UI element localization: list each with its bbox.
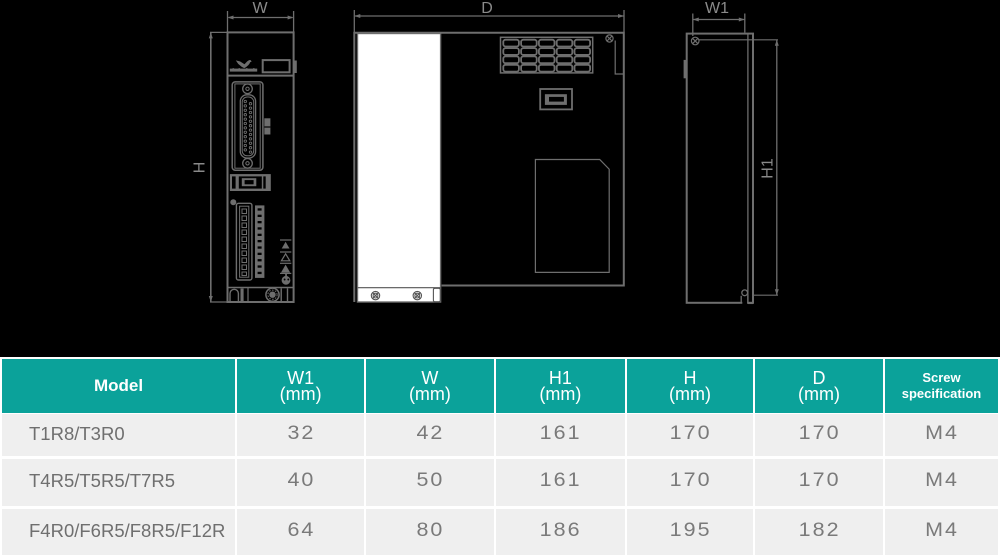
svg-text:H: H (191, 162, 208, 174)
svg-text:D: D (481, 0, 493, 17)
svg-text:H1: H1 (760, 158, 777, 179)
svg-text:W: W (252, 0, 268, 17)
svg-text:W1: W1 (705, 0, 729, 17)
